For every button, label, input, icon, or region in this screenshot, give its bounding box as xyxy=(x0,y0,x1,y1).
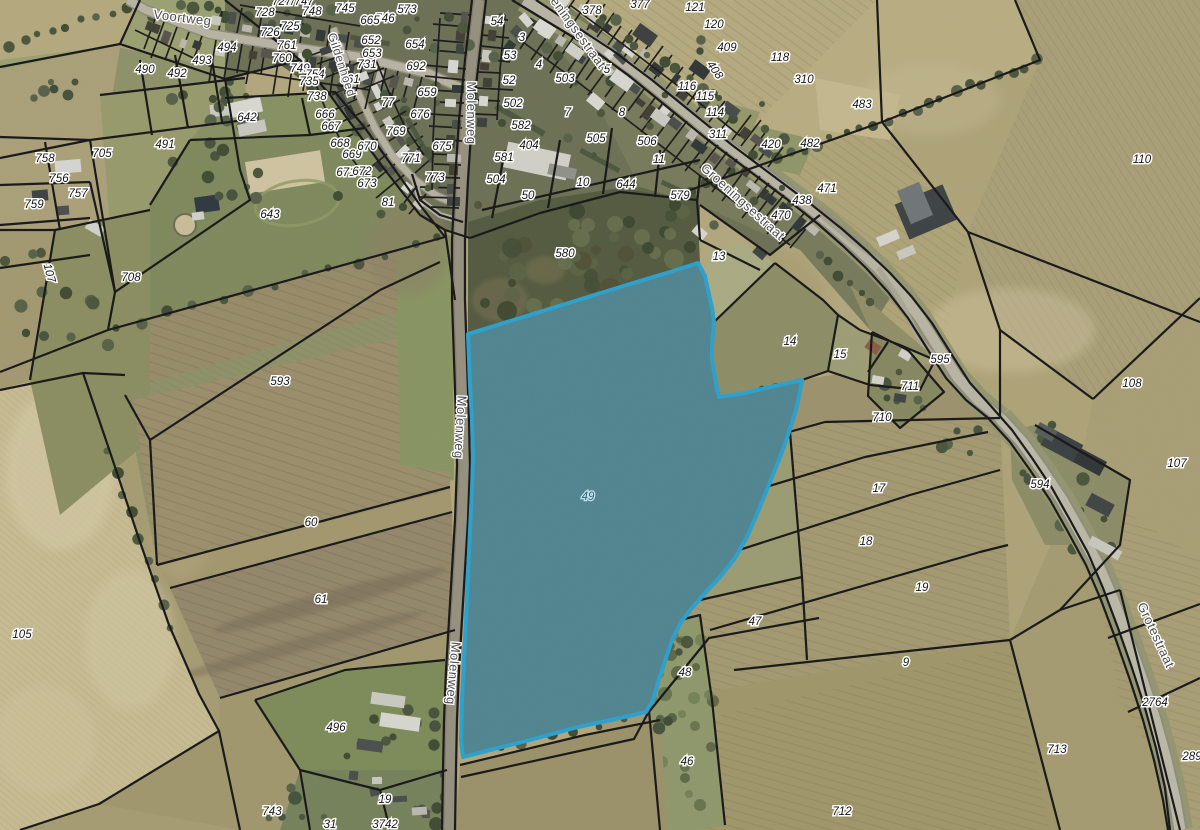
svg-text:728: 728 xyxy=(255,7,275,19)
svg-text:311: 311 xyxy=(709,129,727,141)
svg-text:105: 105 xyxy=(12,629,32,641)
svg-text:593: 593 xyxy=(270,376,290,388)
svg-text:644: 644 xyxy=(616,179,635,191)
svg-text:31: 31 xyxy=(324,819,337,830)
svg-text:738: 738 xyxy=(307,91,327,103)
svg-text:60: 60 xyxy=(305,517,318,529)
svg-text:52: 52 xyxy=(503,75,516,87)
svg-text:77: 77 xyxy=(382,97,395,109)
svg-text:666: 666 xyxy=(315,109,335,121)
svg-text:116: 116 xyxy=(678,81,697,93)
svg-text:595: 595 xyxy=(930,354,950,366)
svg-text:769: 769 xyxy=(386,126,406,138)
svg-text:377: 377 xyxy=(630,0,650,11)
svg-text:483: 483 xyxy=(852,99,872,111)
svg-text:310: 310 xyxy=(794,74,814,86)
svg-text:19: 19 xyxy=(379,794,392,806)
svg-text:757: 757 xyxy=(68,188,88,200)
svg-text:758: 758 xyxy=(35,153,55,165)
svg-text:496: 496 xyxy=(326,722,346,734)
svg-text:493: 493 xyxy=(192,55,212,67)
svg-text:735: 735 xyxy=(299,76,319,88)
svg-text:7: 7 xyxy=(565,107,572,119)
svg-text:675: 675 xyxy=(432,141,452,153)
svg-text:378: 378 xyxy=(582,5,602,17)
svg-text:711: 711 xyxy=(901,381,919,393)
svg-text:580: 580 xyxy=(555,248,575,260)
svg-text:3: 3 xyxy=(519,32,526,44)
svg-text:761: 761 xyxy=(277,40,296,52)
svg-text:673: 673 xyxy=(357,178,377,190)
svg-text:731: 731 xyxy=(357,59,376,71)
svg-text:726: 726 xyxy=(260,27,280,39)
svg-text:748: 748 xyxy=(302,6,322,18)
svg-text:404: 404 xyxy=(519,140,538,152)
svg-text:505: 505 xyxy=(586,133,606,145)
svg-text:581: 581 xyxy=(494,152,513,164)
svg-text:504: 504 xyxy=(486,174,505,186)
svg-text:482: 482 xyxy=(800,138,820,150)
svg-text:759: 759 xyxy=(24,199,44,211)
svg-text:10: 10 xyxy=(577,177,590,189)
svg-text:667: 667 xyxy=(321,121,341,133)
svg-text:Molenweg: Molenweg xyxy=(464,81,479,144)
svg-text:665: 665 xyxy=(360,15,380,27)
svg-text:643: 643 xyxy=(260,209,280,221)
svg-text:46: 46 xyxy=(681,756,694,768)
svg-text:9: 9 xyxy=(903,657,910,669)
svg-text:107: 107 xyxy=(1167,458,1187,470)
svg-text:409: 409 xyxy=(717,42,737,54)
svg-text:579: 579 xyxy=(670,190,690,202)
svg-text:19: 19 xyxy=(916,582,929,594)
svg-text:120: 120 xyxy=(704,19,724,31)
svg-text:17: 17 xyxy=(873,483,886,495)
svg-text:81: 81 xyxy=(382,197,395,209)
svg-text:114: 114 xyxy=(706,107,724,119)
svg-text:115: 115 xyxy=(696,91,715,103)
svg-text:712: 712 xyxy=(832,806,852,818)
svg-text:743: 743 xyxy=(262,806,282,818)
svg-text:471: 471 xyxy=(817,183,836,195)
svg-text:121: 121 xyxy=(685,2,704,14)
svg-text:756: 756 xyxy=(49,173,69,185)
svg-text:50: 50 xyxy=(522,190,535,202)
svg-text:11: 11 xyxy=(653,154,665,166)
svg-text:14: 14 xyxy=(784,336,797,348)
svg-text:710: 710 xyxy=(872,412,892,424)
svg-text:725: 725 xyxy=(280,21,300,33)
svg-text:54: 54 xyxy=(491,16,504,28)
svg-text:506: 506 xyxy=(637,136,657,148)
svg-text:108: 108 xyxy=(1122,378,1142,390)
svg-text:708: 708 xyxy=(121,272,141,284)
svg-text:692: 692 xyxy=(406,61,426,73)
svg-text:4: 4 xyxy=(536,59,542,71)
svg-text:13: 13 xyxy=(713,251,726,263)
svg-text:118: 118 xyxy=(771,52,790,64)
svg-text:773: 773 xyxy=(425,172,445,184)
svg-text:573: 573 xyxy=(397,4,417,16)
svg-text:760: 760 xyxy=(272,53,292,65)
svg-text:15: 15 xyxy=(834,349,847,361)
svg-text:53: 53 xyxy=(504,50,517,62)
svg-text:676: 676 xyxy=(410,109,430,121)
svg-text:420: 420 xyxy=(761,139,781,151)
svg-text:47: 47 xyxy=(749,616,762,628)
svg-text:110: 110 xyxy=(1133,154,1152,166)
svg-text:289: 289 xyxy=(1181,751,1200,763)
svg-text:502: 502 xyxy=(503,98,523,110)
svg-text:491: 491 xyxy=(155,139,174,151)
svg-text:48: 48 xyxy=(679,667,692,679)
svg-text:654: 654 xyxy=(405,39,424,51)
svg-text:713: 713 xyxy=(1047,744,1067,756)
svg-text:745: 745 xyxy=(335,3,355,15)
svg-text:652: 652 xyxy=(361,35,381,47)
svg-text:490: 490 xyxy=(135,64,155,76)
svg-text:438: 438 xyxy=(792,195,812,207)
svg-text:771: 771 xyxy=(401,153,420,165)
svg-text:49: 49 xyxy=(582,491,595,503)
svg-text:582: 582 xyxy=(511,120,531,132)
svg-text:670: 670 xyxy=(357,141,377,153)
svg-text:705: 705 xyxy=(92,148,112,160)
svg-text:18: 18 xyxy=(860,536,873,548)
svg-text:672: 672 xyxy=(352,166,372,178)
svg-text:61: 61 xyxy=(315,594,328,606)
svg-text:2764: 2764 xyxy=(1141,697,1168,709)
svg-text:503: 503 xyxy=(555,73,575,85)
svg-text:659: 659 xyxy=(417,87,437,99)
svg-text:494: 494 xyxy=(217,42,236,54)
svg-text:3742: 3742 xyxy=(372,819,398,830)
svg-text:8: 8 xyxy=(619,107,626,119)
svg-text:642: 642 xyxy=(237,112,257,124)
svg-text:492: 492 xyxy=(167,68,187,80)
svg-text:594: 594 xyxy=(1030,479,1049,491)
